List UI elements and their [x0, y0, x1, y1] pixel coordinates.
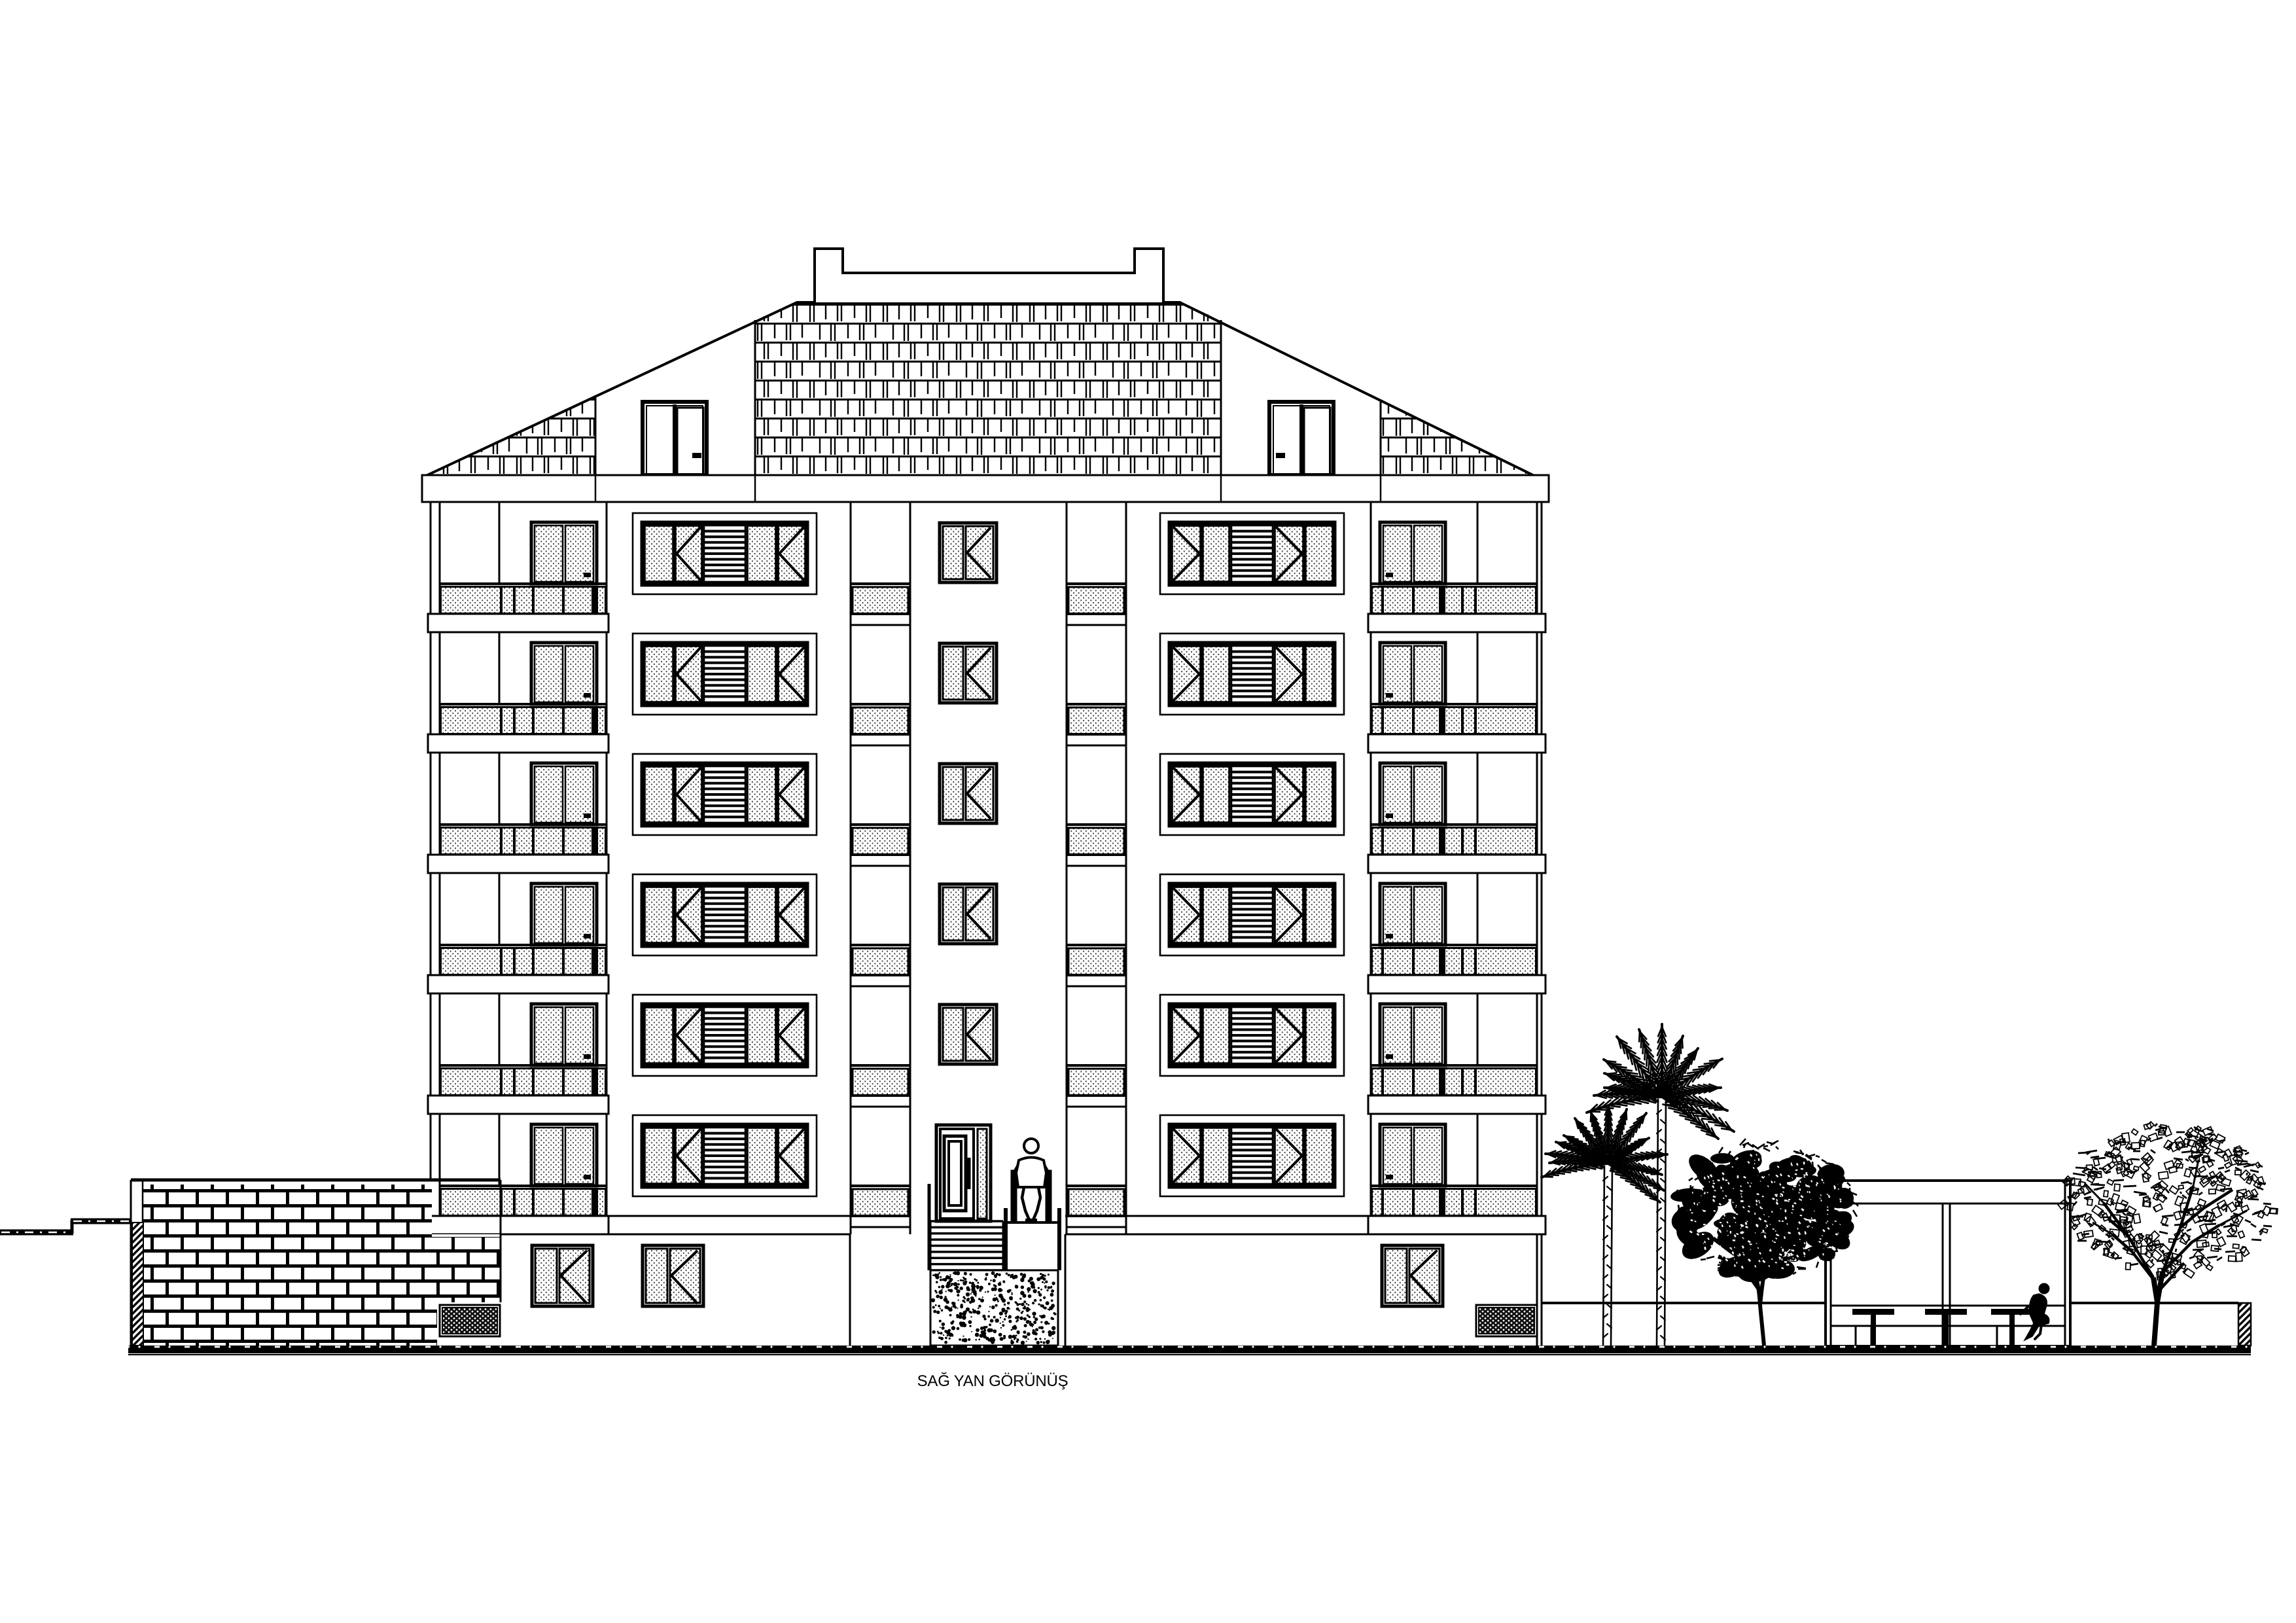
svg-text:SAĞ YAN GÖRÜNÜŞ: SAĞ YAN GÖRÜNÜŞ	[917, 1372, 1069, 1390]
